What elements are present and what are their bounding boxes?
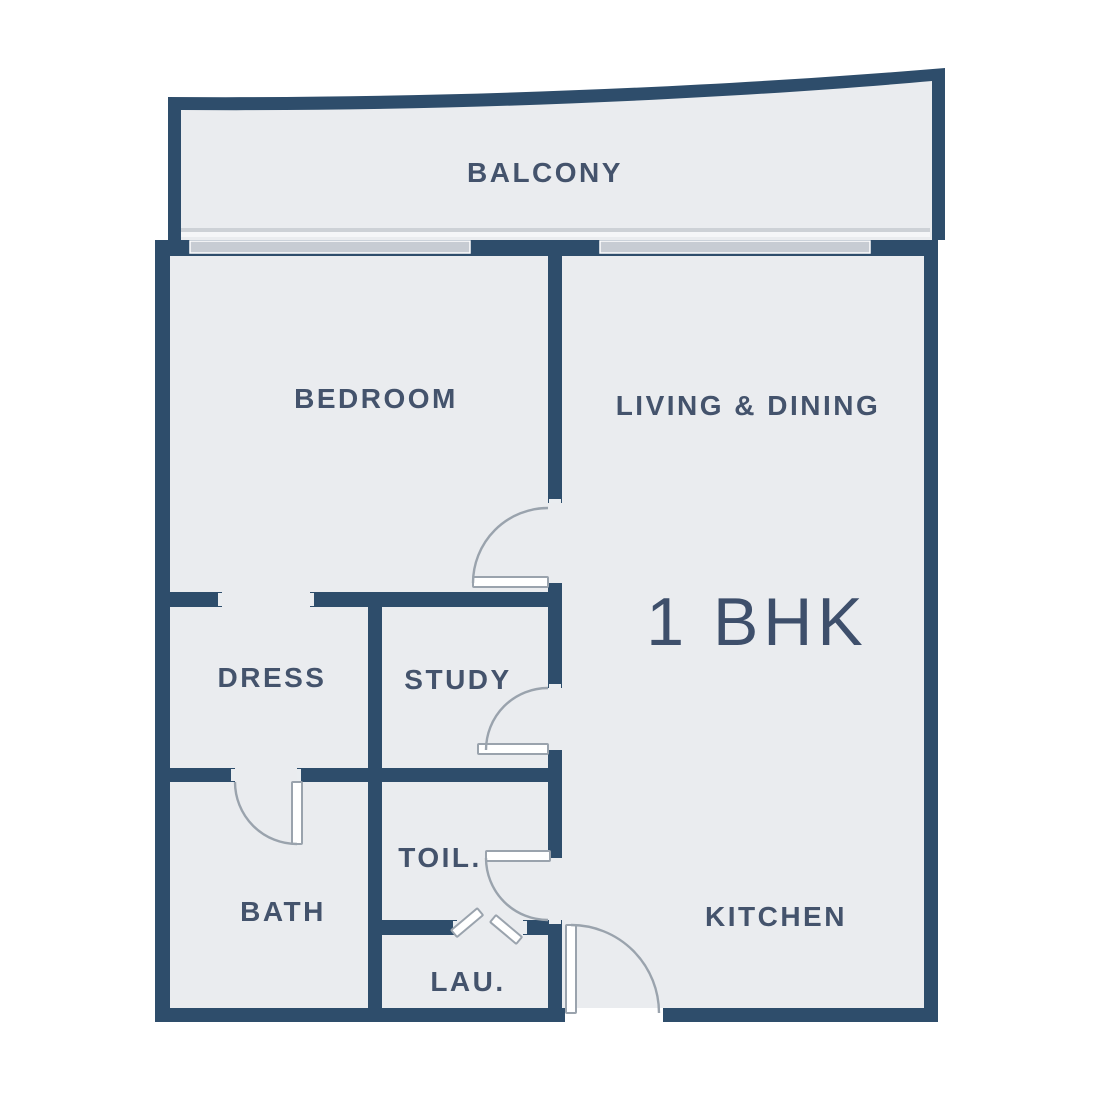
toilet-door-leaf (486, 851, 550, 861)
wall-central-bedroom (548, 256, 562, 503)
wall-study-bath-divider (368, 598, 382, 1008)
sliding-window-living (600, 241, 870, 253)
room-label-laundry: LAU. (430, 966, 505, 997)
jamb-cap (549, 920, 561, 924)
room-label-living-dining: LIVING & DINING (616, 390, 881, 421)
balcony-floor-line (181, 228, 930, 232)
room-label-bedroom: BEDROOM (294, 383, 458, 414)
study-door-leaf (478, 744, 548, 754)
wall-bath-top-left (170, 768, 235, 782)
jamb-cap (549, 499, 561, 503)
room-label-dress: DRESS (218, 662, 327, 693)
sliding-window-bedroom (190, 241, 470, 253)
jamb-cap (297, 769, 301, 781)
bath-door-leaf (292, 782, 302, 844)
room-label-toilet: TOIL. (398, 842, 482, 873)
floor-plan: BALCONY BEDROOM LIVING & DINING DRESS ST… (0, 0, 1100, 1100)
wall-central-kitchen (548, 920, 562, 1008)
room-label-kitchen: KITCHEN (705, 901, 847, 932)
room-label-study: STUDY (404, 664, 511, 695)
entrance-door-leaf (566, 925, 576, 1013)
floor-layer (170, 81, 932, 1008)
wall-dress-top-left (170, 592, 222, 607)
jamb-cap (523, 921, 527, 934)
jamb-cap (231, 769, 235, 781)
balcony-floor-line-gap (181, 232, 930, 237)
wall-study-top (310, 592, 562, 607)
wall-central-study (548, 583, 562, 688)
wall-laundry-top-left (382, 920, 457, 935)
room-label-bath: BATH (240, 896, 326, 927)
entrance-opening (565, 1008, 663, 1022)
jamb-cap (310, 593, 314, 606)
wall-central-toilet (548, 750, 562, 858)
plan-type-label: 1 BHK (646, 584, 868, 660)
jamb-cap (218, 593, 222, 606)
room-label-balcony: BALCONY (467, 157, 623, 188)
wall-bath-toilet-top (297, 768, 562, 782)
jamb-cap (549, 684, 561, 688)
bedroom-door-leaf (473, 577, 548, 587)
